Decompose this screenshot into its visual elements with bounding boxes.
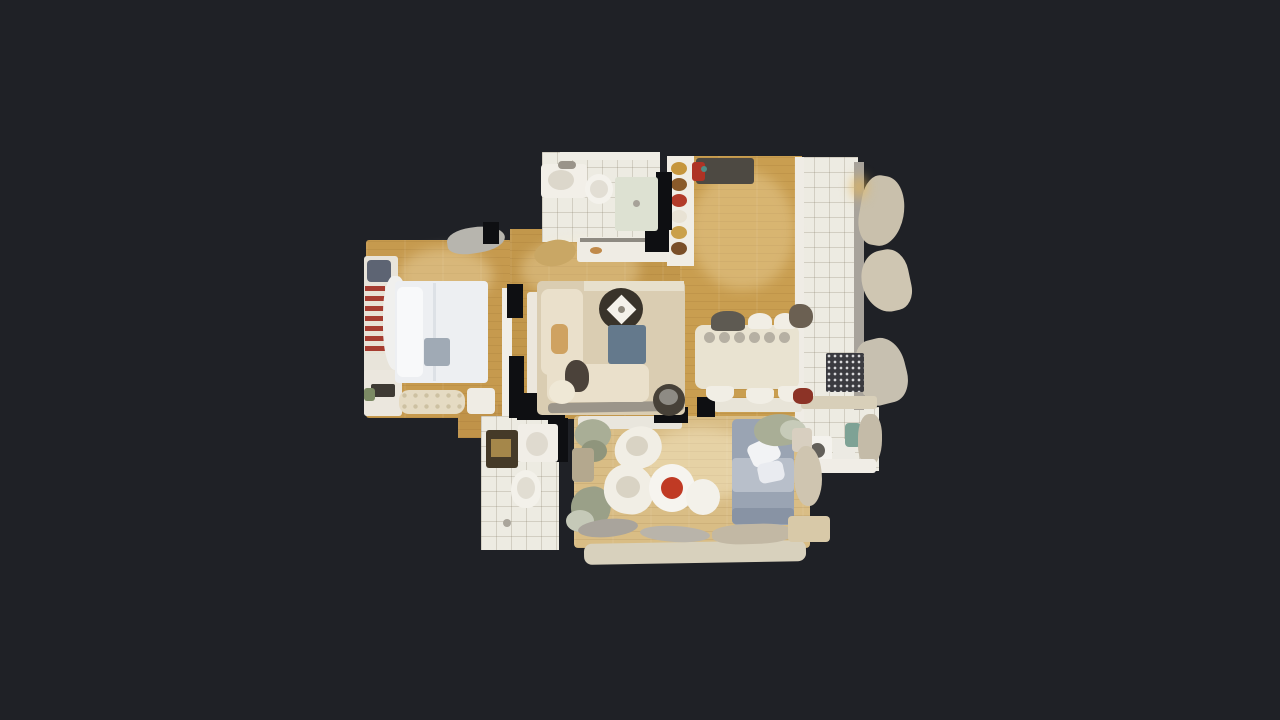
- dining-plate-1: [704, 332, 715, 343]
- shelf-item-4: [671, 210, 687, 223]
- floorplan-3d-view[interactable]: [0, 0, 1280, 720]
- bath-mat-gold: [491, 439, 511, 457]
- dresser-plant: [364, 388, 375, 401]
- sink-basin-top-bath: [548, 170, 574, 190]
- pass-through-items: [789, 304, 813, 328]
- bed-fold: [433, 283, 436, 381]
- sofa-cushion-tan: [551, 324, 568, 354]
- bed-bench: [399, 390, 465, 414]
- dining-plate-2: [719, 332, 730, 343]
- floor-light-entry: [690, 170, 795, 290]
- armchair-1-seat: [626, 436, 648, 456]
- toilet-lid-top-bath: [590, 180, 608, 198]
- bed-pillows: [397, 287, 423, 377]
- pass-through-red: [793, 388, 813, 404]
- dining-chair-3: [706, 386, 734, 402]
- daybed-foot: [732, 508, 794, 524]
- bathroom-top-wall: [560, 152, 660, 160]
- shelf-item-5: [671, 226, 687, 239]
- coffee-table-bowl: [618, 306, 625, 313]
- sink-basin-bottom-bath: [526, 432, 548, 456]
- wardrobe-shelf-items: [367, 260, 391, 282]
- kitchen-mat: [826, 353, 864, 392]
- rug-top-edge: [584, 281, 684, 291]
- dining-plate-5: [764, 332, 775, 343]
- door-gap-2: [507, 284, 523, 318]
- shelf-item-3: [671, 194, 687, 207]
- sofa-cushion-cream: [549, 380, 575, 404]
- shelf-item-1: [671, 162, 687, 175]
- toilet-seat-bottom-bath: [517, 477, 535, 499]
- wall-shelf-item: [590, 247, 602, 254]
- bedside-table: [467, 388, 495, 414]
- shower-drain: [633, 200, 640, 207]
- dining-plate-6: [779, 332, 790, 343]
- dining-chair-dark: [711, 311, 745, 331]
- bed-throw: [424, 338, 450, 366]
- side-cabinet: [572, 448, 594, 482]
- door-gap-6: [656, 172, 672, 230]
- bath-accessories: [558, 161, 576, 169]
- gold-lamp-glow: [852, 176, 866, 198]
- floor-pouf-top: [659, 389, 678, 405]
- dining-plate-3: [734, 332, 745, 343]
- shower-drain-2: [503, 519, 511, 527]
- round-table-2: [686, 479, 720, 515]
- dining-plate-4: [749, 332, 760, 343]
- dining-chair-1: [748, 313, 772, 329]
- ottoman-blue: [608, 325, 646, 364]
- red-bowl: [661, 477, 683, 499]
- shelf-item-2: [671, 178, 687, 191]
- dining-chair-4: [746, 388, 774, 404]
- scan-blob-right-2: [856, 246, 916, 317]
- balcony-strip: [584, 540, 806, 565]
- door-gap-1: [483, 222, 499, 244]
- armchair-2-seat: [616, 476, 640, 498]
- hanging-clothes-red: [365, 286, 385, 354]
- shelf-item-6: [671, 242, 687, 255]
- desk-bottom-right: [788, 516, 830, 542]
- entry-teal-dot: [701, 166, 707, 172]
